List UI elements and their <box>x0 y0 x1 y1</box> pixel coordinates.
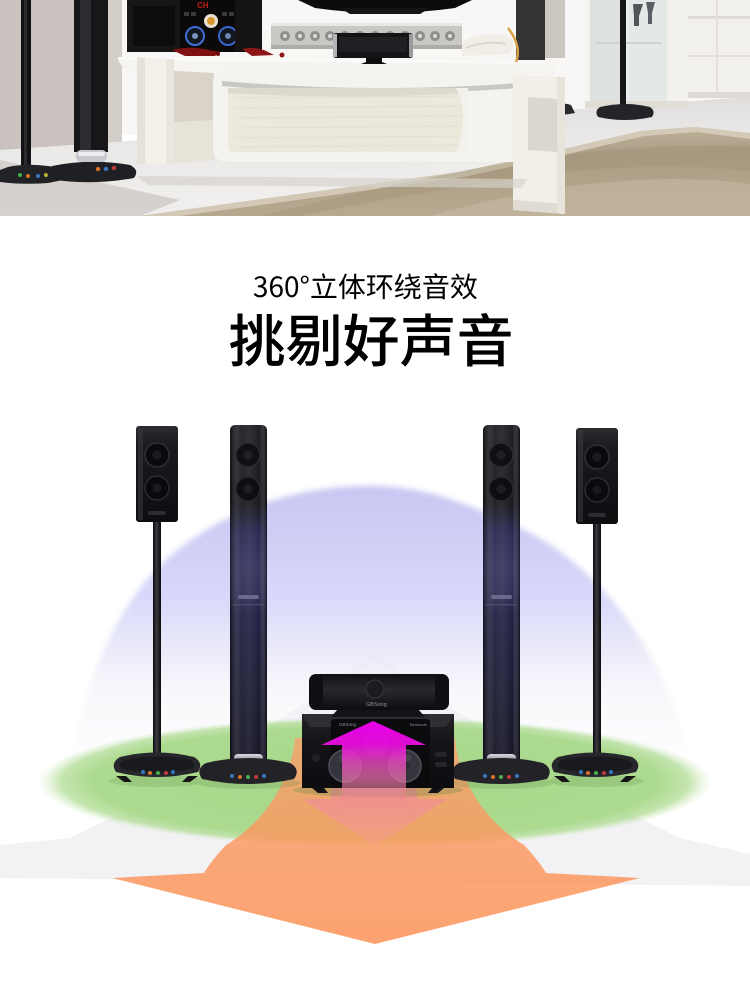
svg-text:GBSong: GBSong <box>366 702 387 708</box>
svg-text:Bluetooth: Bluetooth <box>410 722 427 727</box>
svg-text:GBSong: GBSong <box>339 722 357 727</box>
svg-text:CH: CH <box>197 1 209 10</box>
